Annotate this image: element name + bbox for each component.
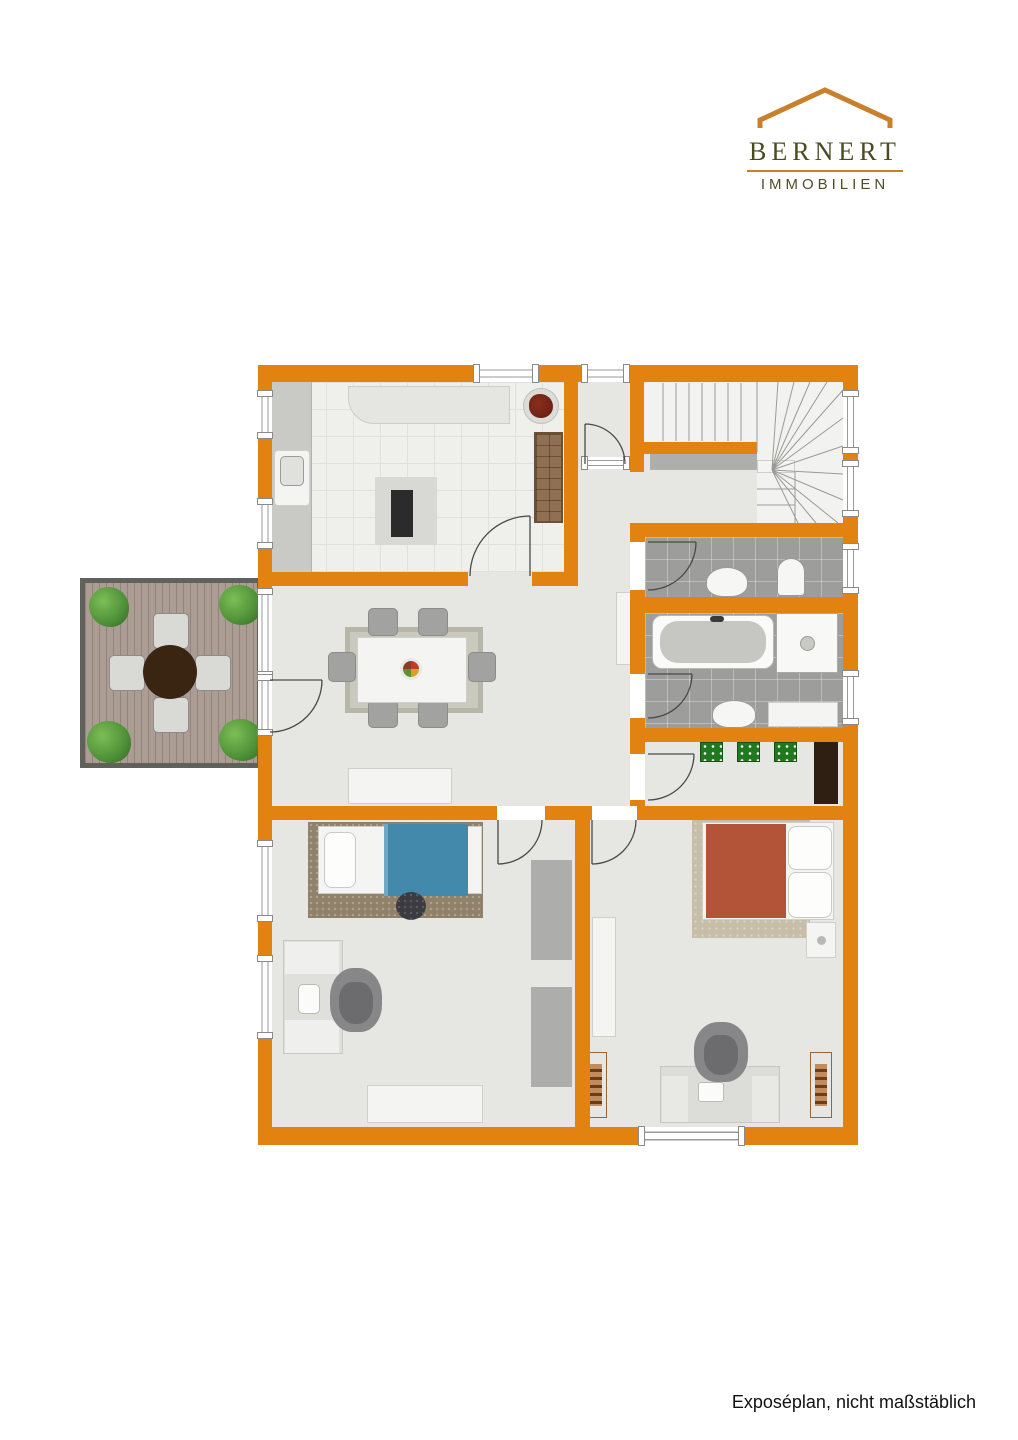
- doormat-icon: [774, 742, 797, 762]
- wall: [258, 734, 272, 842]
- terrace-chair-bottom: [153, 697, 189, 733]
- wardrobe: [531, 987, 572, 1087]
- kitchen-wall-counter: [348, 386, 510, 424]
- window: [258, 842, 272, 920]
- wall: [628, 365, 858, 382]
- stair-landing-step: [650, 452, 757, 470]
- dining-chair: [368, 608, 398, 636]
- wooden-dresser: [810, 1052, 832, 1118]
- plant-icon: [529, 394, 553, 418]
- window: [843, 392, 858, 452]
- stair-landing-floor: [630, 472, 644, 523]
- shrub-icon: [219, 719, 263, 761]
- window: [258, 392, 272, 437]
- wall: [258, 806, 497, 820]
- straight-stairs: [644, 382, 757, 442]
- pillow-icon: [788, 826, 832, 870]
- window: [843, 462, 858, 515]
- wall: [258, 572, 468, 586]
- kitchen-shelf-cabinet: [534, 432, 563, 523]
- office-chair: [694, 1022, 748, 1082]
- wall: [843, 723, 858, 1145]
- window: [258, 957, 272, 1037]
- wardrobe: [592, 917, 616, 1037]
- floor-plan: [0, 0, 1018, 1440]
- washbasin-icon: [706, 567, 748, 597]
- office-chair: [330, 968, 382, 1032]
- desk-shelf: [285, 1020, 339, 1053]
- dining-chair: [328, 652, 356, 682]
- wall: [258, 365, 272, 392]
- wall: [258, 365, 475, 382]
- fruit-bowl: [400, 658, 422, 680]
- wall: [645, 597, 843, 613]
- wall: [630, 523, 843, 537]
- desk-shelf: [285, 942, 339, 974]
- stair-newel: [757, 460, 795, 473]
- cooking-island: [391, 490, 413, 537]
- bathtub-faucet: [710, 616, 724, 622]
- window: [475, 365, 537, 382]
- terrace-chair-right: [195, 655, 231, 691]
- kitchen-door-floor: [468, 572, 532, 586]
- dining-chair: [468, 652, 496, 682]
- wall: [637, 806, 858, 820]
- wall: [645, 728, 843, 742]
- winding-stairs: [757, 382, 843, 523]
- wall: [258, 437, 272, 500]
- wall: [545, 806, 592, 820]
- wall: [743, 1127, 858, 1145]
- bath-counter: [768, 702, 838, 727]
- laptop-icon: [698, 1082, 724, 1102]
- nightstand-knob: [817, 936, 826, 945]
- expose-page: BERNERT IMMOBILIEN: [0, 0, 1018, 1440]
- kitchen-sink-basin: [280, 456, 304, 486]
- terrace-door-frame: [258, 676, 272, 734]
- wall: [630, 590, 645, 674]
- doormat-icon: [700, 742, 723, 762]
- terrace-chair-left: [109, 655, 145, 691]
- wall: [843, 515, 858, 545]
- desk-drawer: [662, 1076, 688, 1122]
- window: [583, 365, 628, 382]
- window: [258, 590, 272, 676]
- plan-disclaimer: Exposéplan, nicht maßstäblich: [732, 1392, 976, 1413]
- toilet-icon: [777, 558, 805, 596]
- blanket-blue: [384, 824, 468, 896]
- living-sideboard: [348, 768, 452, 804]
- pillow-icon: [324, 832, 356, 888]
- window: [843, 545, 858, 592]
- wall: [630, 442, 757, 454]
- entrance-hall-floor: [578, 382, 630, 586]
- dining-chair: [368, 700, 398, 728]
- washbasin-icon: [712, 700, 756, 728]
- wall: [630, 718, 645, 754]
- window: [843, 672, 858, 723]
- shrub-icon: [89, 587, 129, 627]
- wall: [532, 572, 578, 586]
- terrace-chair-top: [153, 613, 189, 649]
- shower-drain: [800, 636, 815, 651]
- bedroom-sideboard: [367, 1085, 483, 1123]
- window: [258, 500, 272, 547]
- terrace-deck: [80, 578, 262, 768]
- blanket-red: [706, 824, 786, 918]
- shrub-icon: [87, 721, 131, 763]
- wall: [564, 382, 578, 586]
- ottoman-icon: [396, 892, 426, 920]
- wall: [258, 920, 272, 957]
- dining-chair: [418, 608, 448, 636]
- doormat-icon: [737, 742, 760, 762]
- wall: [575, 820, 590, 1127]
- desk-drawer: [752, 1076, 778, 1122]
- wall: [843, 592, 858, 672]
- corridor-wardrobe: [814, 742, 838, 804]
- wall: [537, 365, 583, 382]
- shrub-icon: [219, 585, 261, 625]
- wall: [843, 365, 858, 392]
- window: [640, 1127, 743, 1145]
- terrace-round-table: [143, 645, 197, 699]
- entrance-door-threshold: [583, 457, 628, 469]
- pillow-icon: [788, 872, 832, 918]
- wall: [630, 382, 644, 472]
- wall: [630, 537, 645, 542]
- wardrobe: [531, 860, 572, 960]
- wall: [258, 1127, 640, 1145]
- bathtub-basin: [660, 621, 766, 663]
- dining-chair: [418, 700, 448, 728]
- desk-tablet: [298, 984, 320, 1014]
